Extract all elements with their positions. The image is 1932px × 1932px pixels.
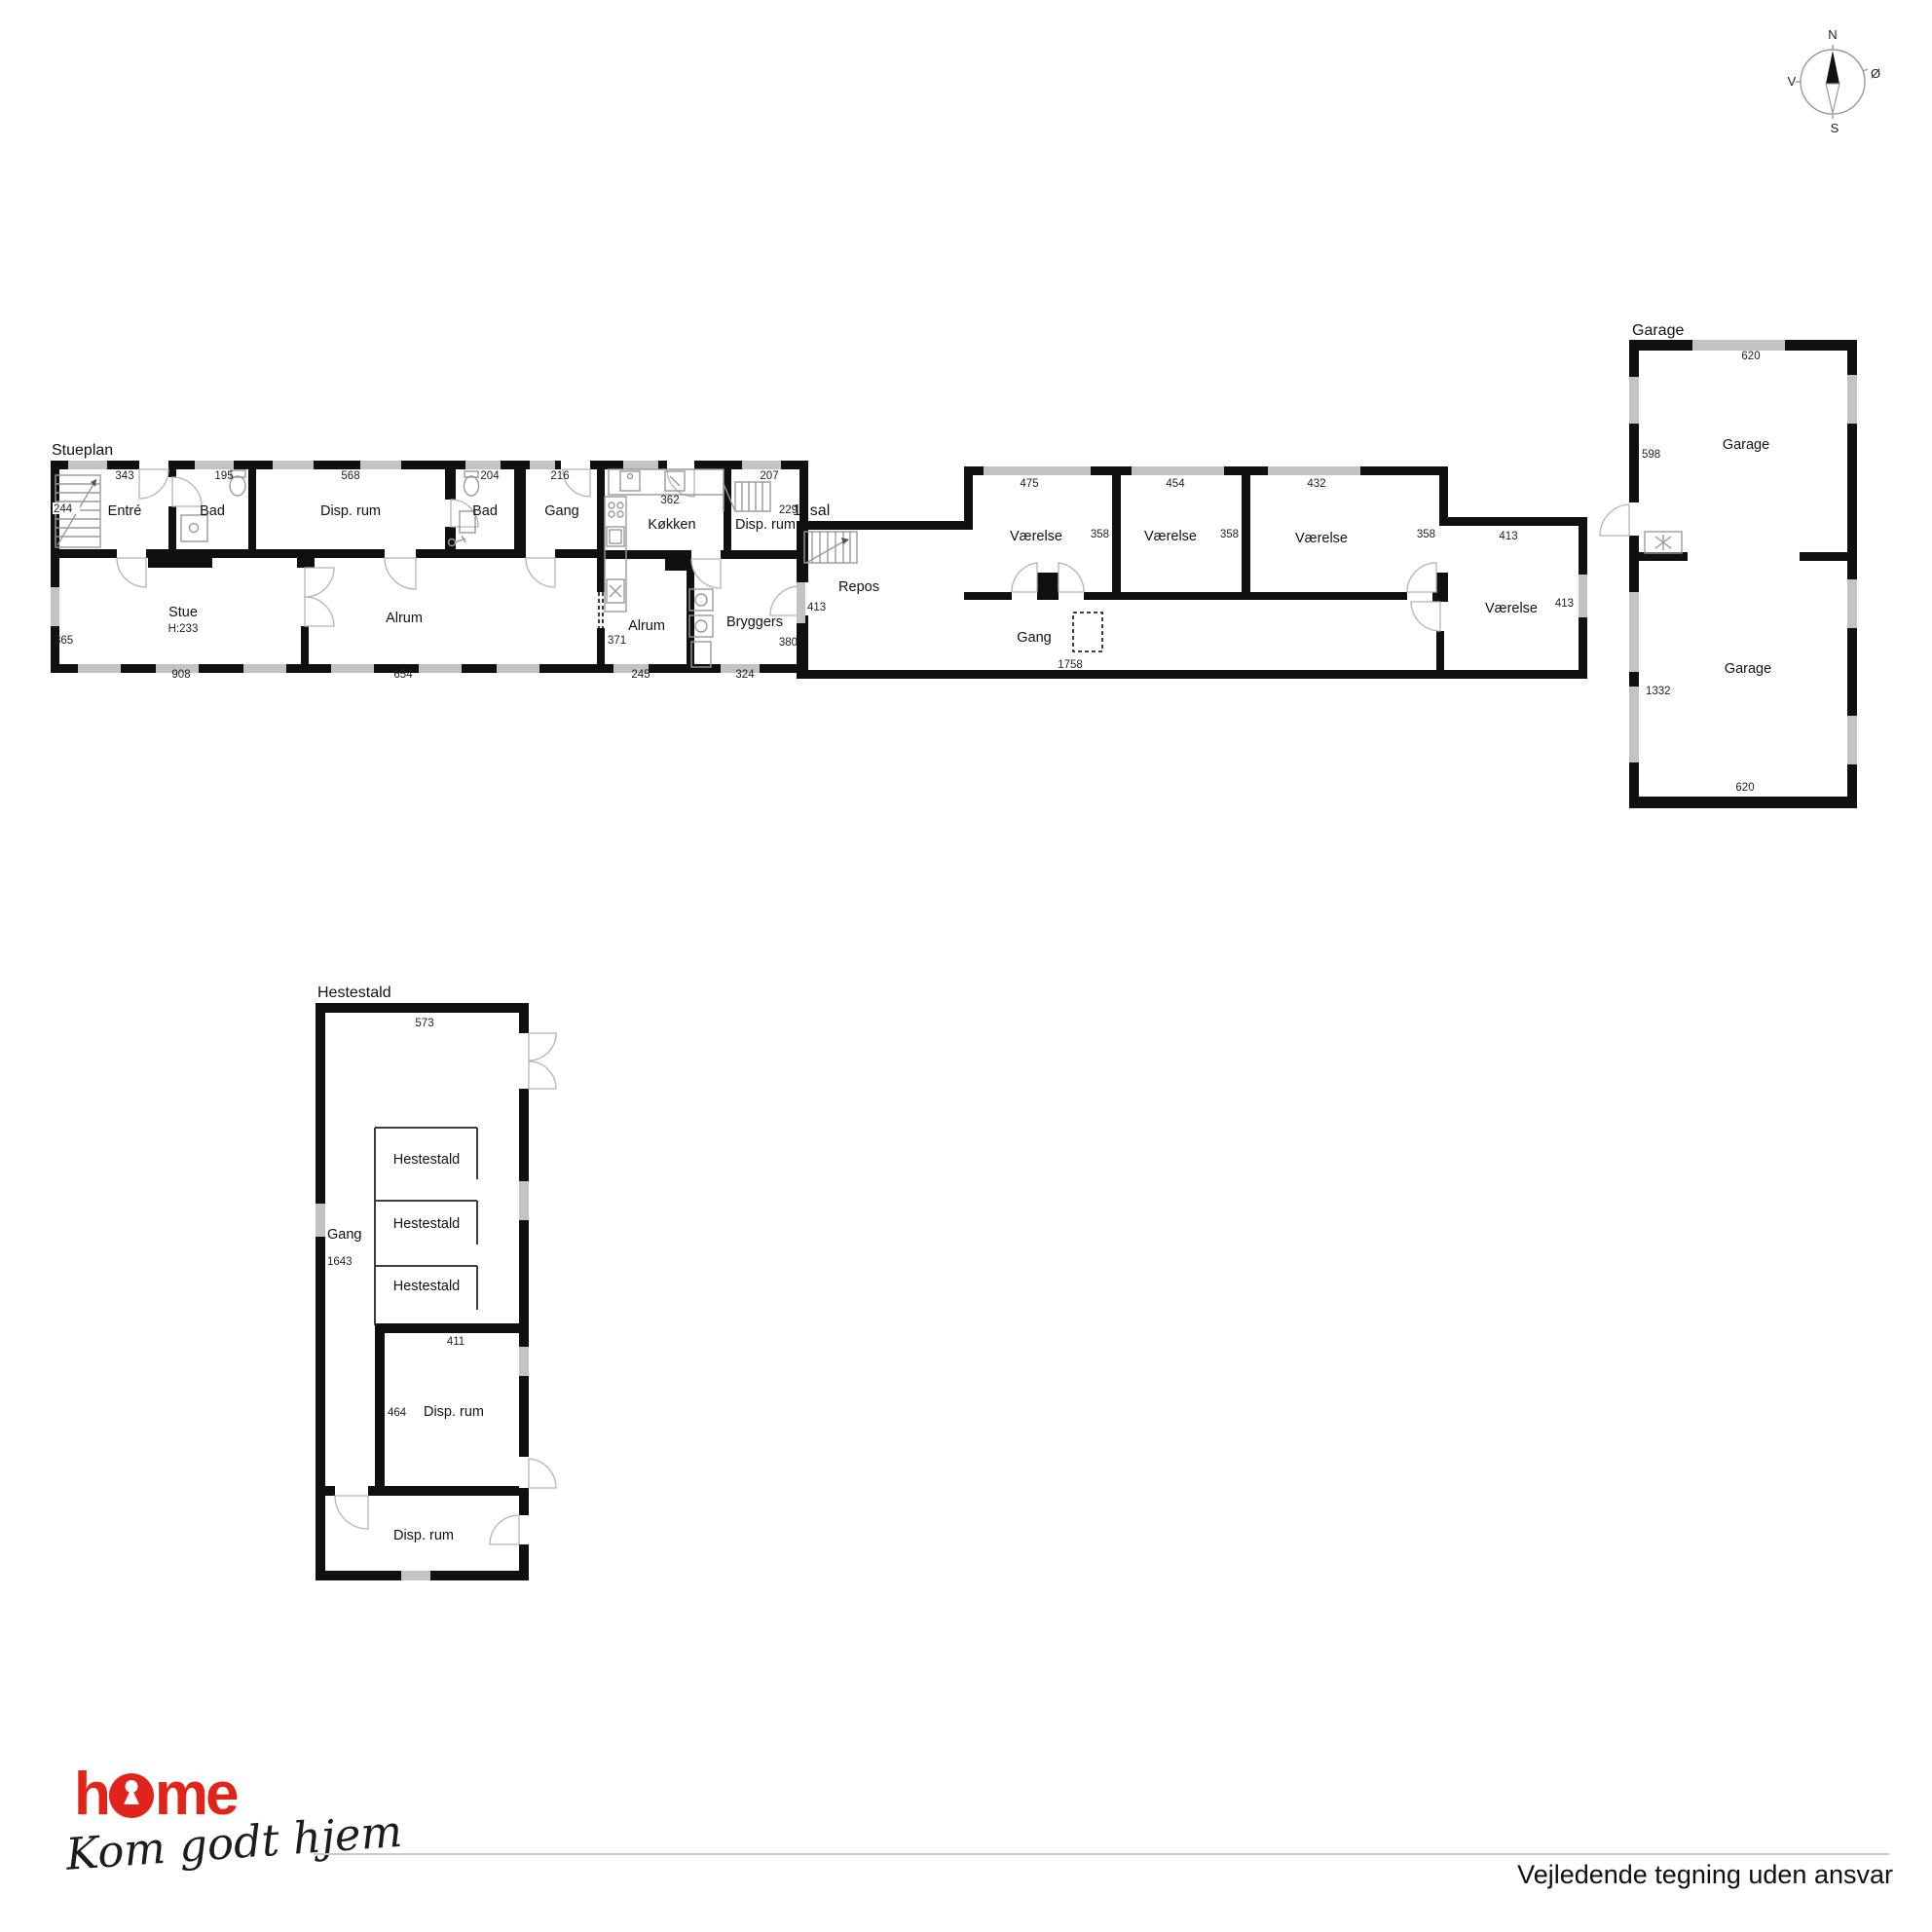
compass-rose: N S V Ø xyxy=(1784,21,1911,143)
dim-1758: 1758 xyxy=(1058,659,1083,671)
dim-413-left: 413 xyxy=(807,602,826,613)
room-entre: Entré xyxy=(108,503,142,519)
room-garage1: Garage xyxy=(1723,437,1769,453)
floor-plan-hestestald: Hestestald 573 164 xyxy=(308,982,566,1585)
stueplan-title: Stueplan xyxy=(52,442,113,459)
room-bryggers: Bryggers xyxy=(726,614,783,630)
dim-362: 362 xyxy=(660,495,679,506)
sal1-walls xyxy=(797,466,1587,679)
dim-573: 573 xyxy=(415,1018,433,1029)
room-disp-hest1: Disp. rum xyxy=(424,1404,484,1420)
home-logo: hme Kom godt hjem xyxy=(74,1765,401,1880)
garage-door-gaps xyxy=(1629,502,1639,536)
room-stall2: Hestestald xyxy=(393,1216,461,1232)
room-vaerelse4: Værelse xyxy=(1485,601,1538,616)
room-bad2: Bad xyxy=(472,503,498,519)
dim-1332: 1332 xyxy=(1646,686,1671,697)
dim-1643: 1643 xyxy=(327,1256,353,1268)
hestestald-labels: 573 1643 411 464 Gang Hestestald Hestest… xyxy=(327,1018,484,1543)
compass-label-o: Ø xyxy=(1871,66,1880,81)
dim-413-top: 413 xyxy=(1499,531,1517,542)
dim-371: 371 xyxy=(608,635,626,647)
room-disp-hest2: Disp. rum xyxy=(393,1528,454,1543)
floor-plan-garage: Garage 620 598 1332 620 Garage Garage xyxy=(1591,319,1883,821)
floor-plan-1sal: 1. sal xyxy=(791,450,1599,693)
garage-title: Garage xyxy=(1632,322,1684,339)
dim-413-right: 413 xyxy=(1555,598,1574,610)
compass-label-n: N xyxy=(1828,27,1837,42)
room-gang-sal: Gang xyxy=(1017,630,1051,646)
logo-text-h: h xyxy=(74,1761,108,1828)
room-stue-height: H:233 xyxy=(168,623,199,635)
room-gang-hest: Gang xyxy=(327,1227,361,1243)
room-vaerelse3: Værelse xyxy=(1295,531,1348,546)
dim-654: 654 xyxy=(393,669,413,681)
room-disp1: Disp. rum xyxy=(320,503,381,519)
room-vaerelse2: Værelse xyxy=(1144,529,1197,544)
dim-908: 908 xyxy=(171,669,190,681)
dim-245: 245 xyxy=(631,669,650,681)
dim-324: 324 xyxy=(735,669,755,681)
sal1-labels: 413 475 454 432 358 358 358 413 413 1758… xyxy=(807,478,1574,671)
sal1-title: 1. sal xyxy=(793,502,830,519)
compass-label-s: S xyxy=(1831,121,1839,135)
compass-label-v: V xyxy=(1788,74,1797,89)
sal1-loft-hatch xyxy=(1073,613,1102,651)
room-vaerelse1: Værelse xyxy=(1010,529,1062,544)
room-stall1: Hestestald xyxy=(393,1152,461,1168)
dim-598: 598 xyxy=(1642,449,1660,461)
dim-620-bottom: 620 xyxy=(1735,782,1754,794)
garage-walls xyxy=(1629,340,1857,808)
dim-207: 207 xyxy=(760,470,778,482)
room-gang-st: Gang xyxy=(544,503,578,519)
compass-needle-south xyxy=(1826,84,1839,113)
dim-411: 411 xyxy=(447,1336,464,1348)
compass-needle-north xyxy=(1826,51,1839,84)
dim-204: 204 xyxy=(480,470,500,482)
hestestald-title: Hestestald xyxy=(317,985,391,1001)
room-stall3: Hestestald xyxy=(393,1279,461,1294)
floor-plan-stueplan: Stueplan xyxy=(39,441,818,692)
footer-divider xyxy=(314,1853,1889,1855)
dim-343: 343 xyxy=(115,470,133,482)
dim-475: 475 xyxy=(1020,478,1038,490)
dim-454: 454 xyxy=(1166,478,1185,490)
stueplan-kitchen-fixtures xyxy=(605,469,724,612)
dim-216: 216 xyxy=(550,470,569,482)
room-garage2: Garage xyxy=(1725,661,1771,677)
room-disp2: Disp. rum xyxy=(735,517,796,533)
dim-464: 464 xyxy=(388,1407,407,1419)
stueplan-door-gaps xyxy=(117,461,808,628)
dim-195: 195 xyxy=(214,470,233,482)
garage-fixture xyxy=(1645,532,1682,553)
sal1-stairs-repos xyxy=(804,532,857,563)
keyhole-icon xyxy=(109,1773,154,1818)
dim-432: 432 xyxy=(1307,478,1325,490)
dim-365: 365 xyxy=(55,635,73,647)
dim-620-top: 620 xyxy=(1741,351,1760,362)
garage-doors xyxy=(1600,504,1629,536)
disclaimer-text: Vejledende tegning uden ansvar xyxy=(1517,1860,1893,1890)
room-bad1: Bad xyxy=(200,503,225,519)
dim-358c: 358 xyxy=(1417,529,1435,540)
garage-labels: 620 598 1332 620 Garage Garage xyxy=(1642,351,1771,794)
dim-244: 244 xyxy=(54,503,73,515)
room-kokken: Køkken xyxy=(648,517,695,533)
room-alrum1: Alrum xyxy=(386,611,423,626)
room-alrum2: Alrum xyxy=(628,618,665,634)
dim-358a: 358 xyxy=(1091,529,1109,540)
stueplan-labels: 244 343 195 568 204 216 362 207 229 365 … xyxy=(53,470,798,681)
room-stue: Stue xyxy=(168,605,198,620)
room-repos: Repos xyxy=(838,579,879,595)
dim-568: 568 xyxy=(341,470,359,482)
dim-358b: 358 xyxy=(1220,529,1239,540)
